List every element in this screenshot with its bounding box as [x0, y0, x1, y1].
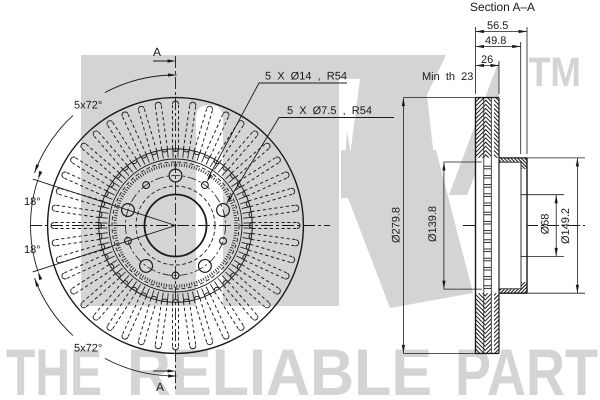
- svg-text:5 X Ø14 , R54: 5 X Ø14 , R54: [265, 71, 347, 83]
- svg-text:49.8: 49.8: [485, 35, 506, 47]
- svg-text:Ø149.2: Ø149.2: [560, 208, 572, 244]
- svg-text:26: 26: [481, 54, 493, 66]
- svg-text:Min th 23: Min th 23: [422, 71, 473, 83]
- svg-text:A: A: [153, 45, 161, 59]
- svg-text:56.5: 56.5: [487, 20, 508, 32]
- svg-text:5x72°: 5x72°: [74, 100, 102, 112]
- svg-text:TM: TM: [528, 49, 581, 95]
- svg-text:5 X Ø7.5 , R54: 5 X Ø7.5 , R54: [287, 105, 372, 117]
- svg-text:Ø279.8: Ø279.8: [391, 207, 403, 243]
- svg-text:5x72°: 5x72°: [74, 343, 102, 355]
- svg-text:Ø139.8: Ø139.8: [427, 206, 439, 242]
- svg-text:Section A–A: Section A–A: [470, 0, 535, 14]
- svg-text:Ø68: Ø68: [540, 214, 552, 235]
- svg-text:18°: 18°: [24, 196, 41, 208]
- svg-text:A: A: [156, 380, 164, 394]
- svg-text:18°: 18°: [24, 244, 41, 256]
